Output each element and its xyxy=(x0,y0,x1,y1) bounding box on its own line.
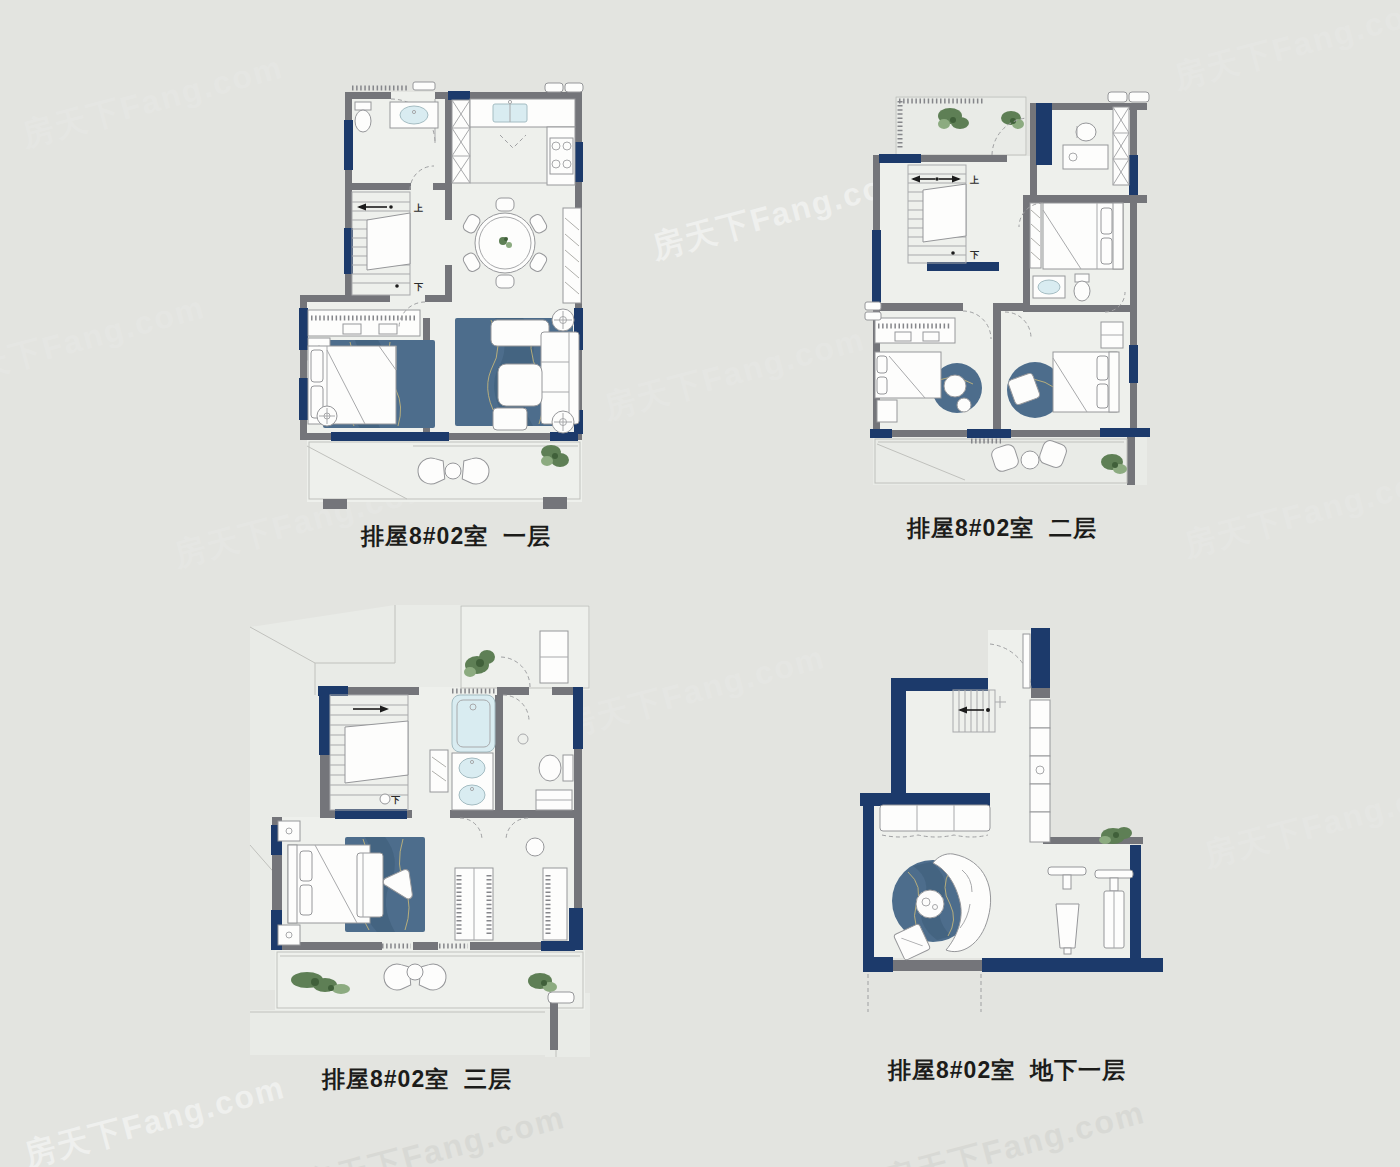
plan-caption-basement: 排屋8#02室 地下一层 xyxy=(888,1055,1126,1086)
watermark: 房天下Fang.com xyxy=(1199,766,1400,878)
fan-icon xyxy=(552,411,574,433)
desk xyxy=(1063,145,1108,169)
ceiling-fan-icon xyxy=(317,406,337,426)
plan-floor-1: 上 下 xyxy=(295,80,595,510)
watermark: 房天下Fang.com xyxy=(1179,456,1400,568)
bedroom-right xyxy=(1019,203,1123,269)
living-room xyxy=(455,309,579,433)
ac-unit xyxy=(1129,92,1149,102)
stairs-down-label: 下 xyxy=(391,795,401,805)
stairs-down-label: 下 xyxy=(414,282,424,292)
ottoman xyxy=(493,408,527,430)
ac-unit xyxy=(545,83,563,92)
ac-unit xyxy=(865,302,881,310)
desk-chair xyxy=(1076,123,1096,141)
plan-floor-2: 上 下 xyxy=(865,90,1165,500)
plan-caption-floor-1: 排屋8#02室 一层 xyxy=(361,521,551,552)
chaise xyxy=(491,320,549,346)
bedroom xyxy=(308,302,435,428)
small-desk xyxy=(877,400,897,422)
dashed-outline xyxy=(868,974,981,1012)
watermark: 房天下Fang.com xyxy=(879,1091,1150,1167)
stool xyxy=(526,838,544,856)
tv-cabinet xyxy=(563,208,581,303)
ac-unit xyxy=(1108,92,1127,102)
watermark: 房天下Fang.com xyxy=(0,286,210,398)
master-bedroom xyxy=(278,821,425,945)
watermark: 房天下Fang.com xyxy=(19,1066,290,1167)
stairs-down-label: 下 xyxy=(970,250,980,260)
plan-basement xyxy=(858,618,1163,1013)
ac-unit xyxy=(565,83,583,92)
plan-floor-3: 下 xyxy=(245,595,605,1060)
sofa xyxy=(541,332,579,424)
fan-icon xyxy=(552,309,574,331)
watermark: 房天下Fang.com xyxy=(599,318,870,430)
stairs-up-label: 上 xyxy=(969,175,979,185)
storage-closets xyxy=(1030,700,1050,842)
watermark: 房天下Fang.com xyxy=(299,1096,570,1167)
coffee-table xyxy=(498,364,542,406)
duvet xyxy=(357,853,383,917)
watermark: 房天下Fang.com xyxy=(1169,0,1400,100)
stairs-up-label: 上 xyxy=(413,203,423,213)
plan-caption-floor-3: 排屋8#02室 三层 xyxy=(322,1064,512,1095)
floorplan-sheet: 房天下Fang.com 房天下Fang.com 房天下Fang.com 房天下F… xyxy=(0,0,1400,1167)
plan-caption-floor-2: 排屋8#02室 二层 xyxy=(907,513,1097,544)
ac-unit xyxy=(865,312,881,320)
watermark: 房天下Fang.com xyxy=(17,46,288,158)
